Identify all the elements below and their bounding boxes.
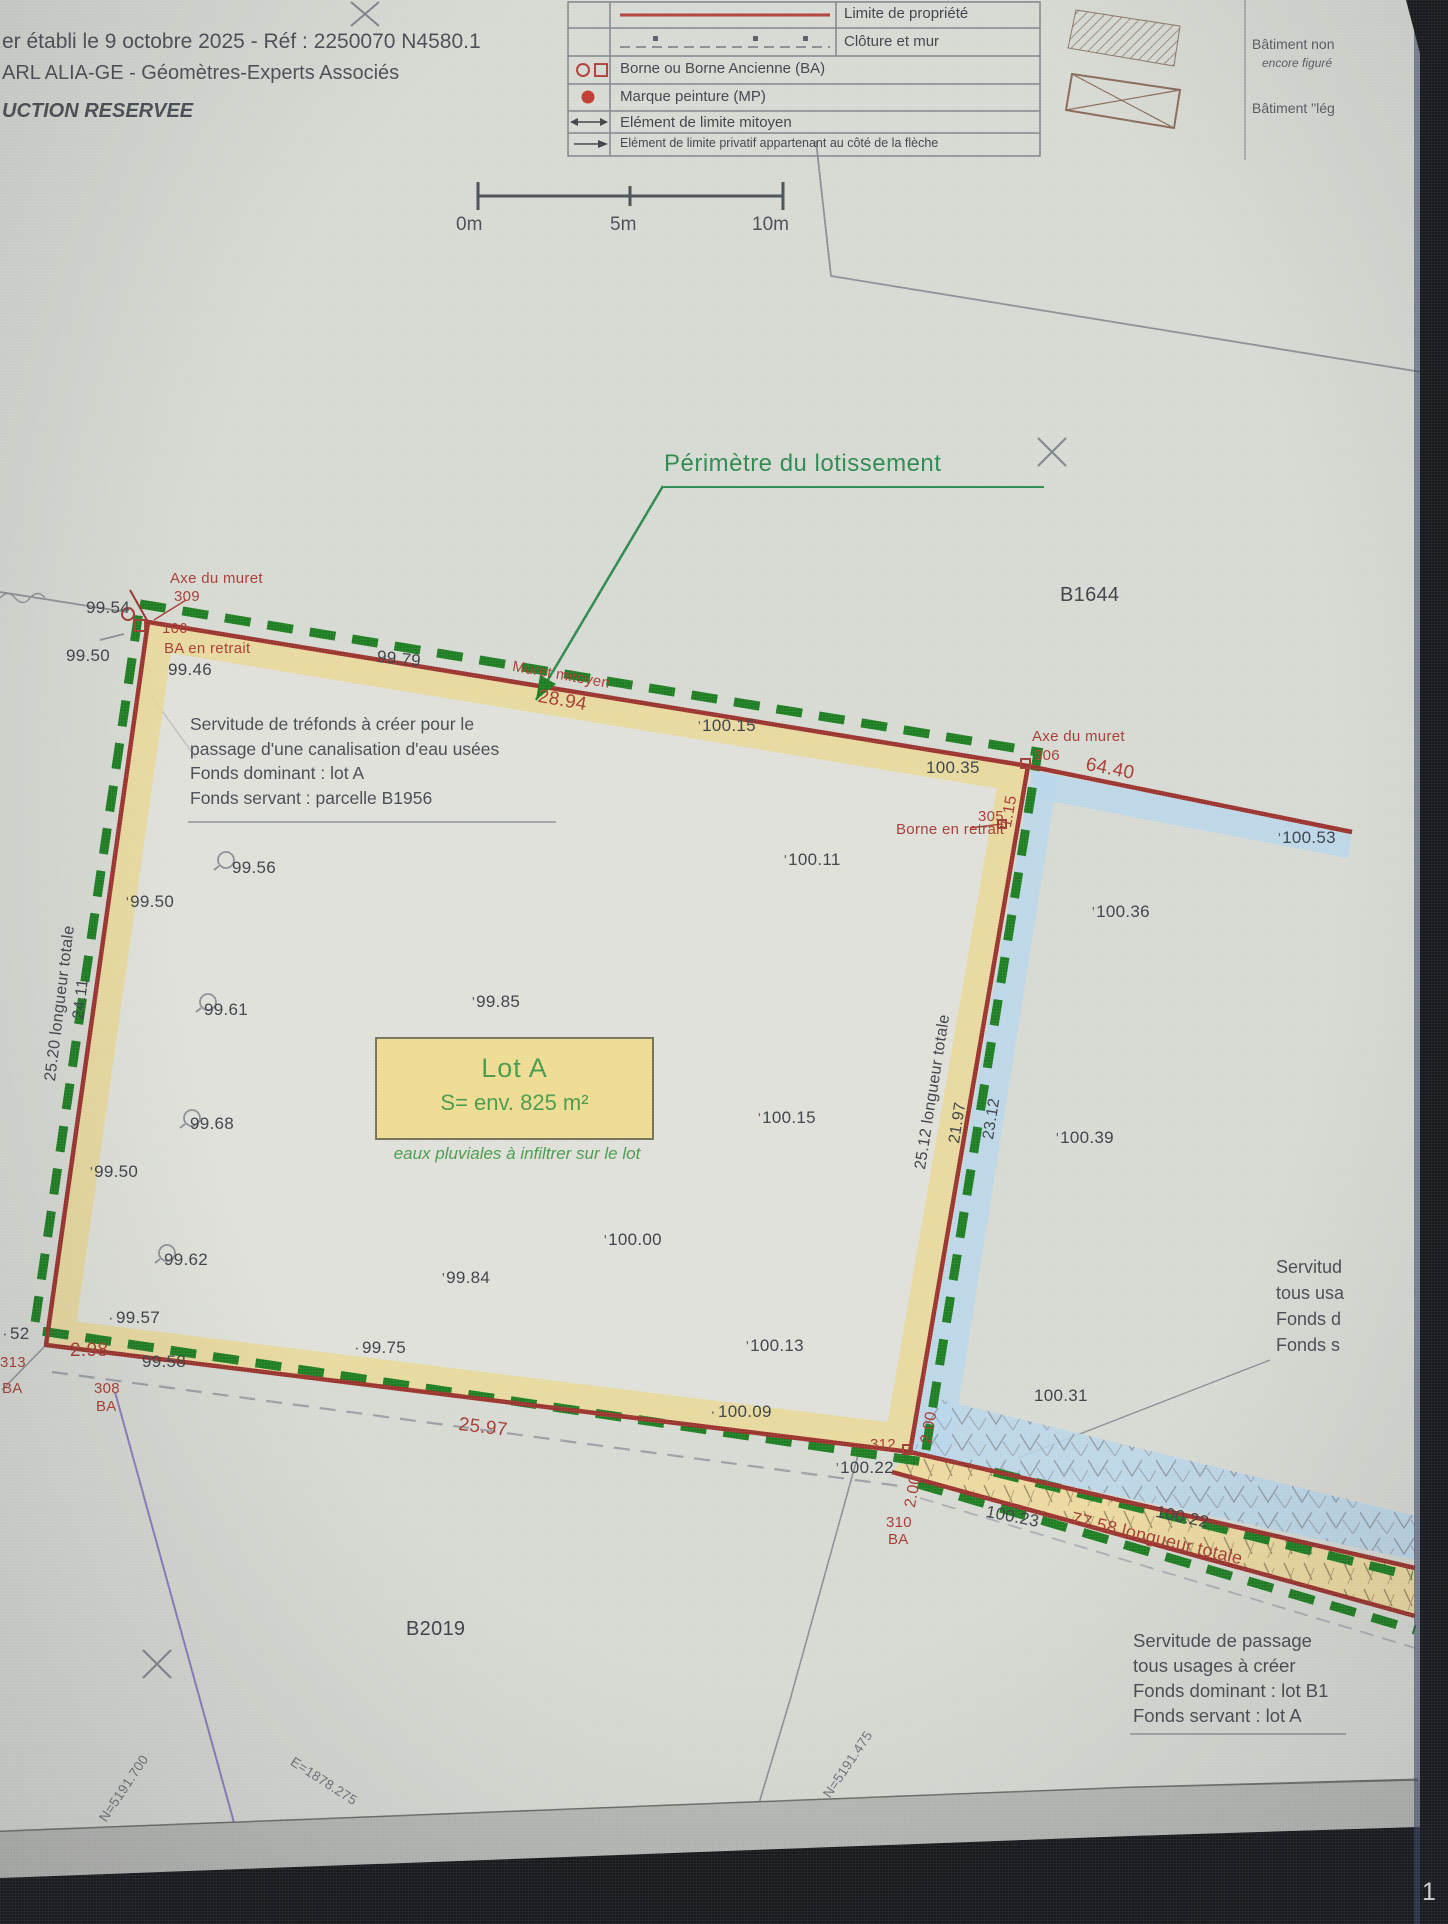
survey-plan-page: er établi le 9 octobre 2025 - Réf : 2250… (0, 0, 1448, 1924)
screen-bezel-overlay (0, 0, 1448, 1924)
sheet-number: 1 (1422, 1878, 1436, 1907)
